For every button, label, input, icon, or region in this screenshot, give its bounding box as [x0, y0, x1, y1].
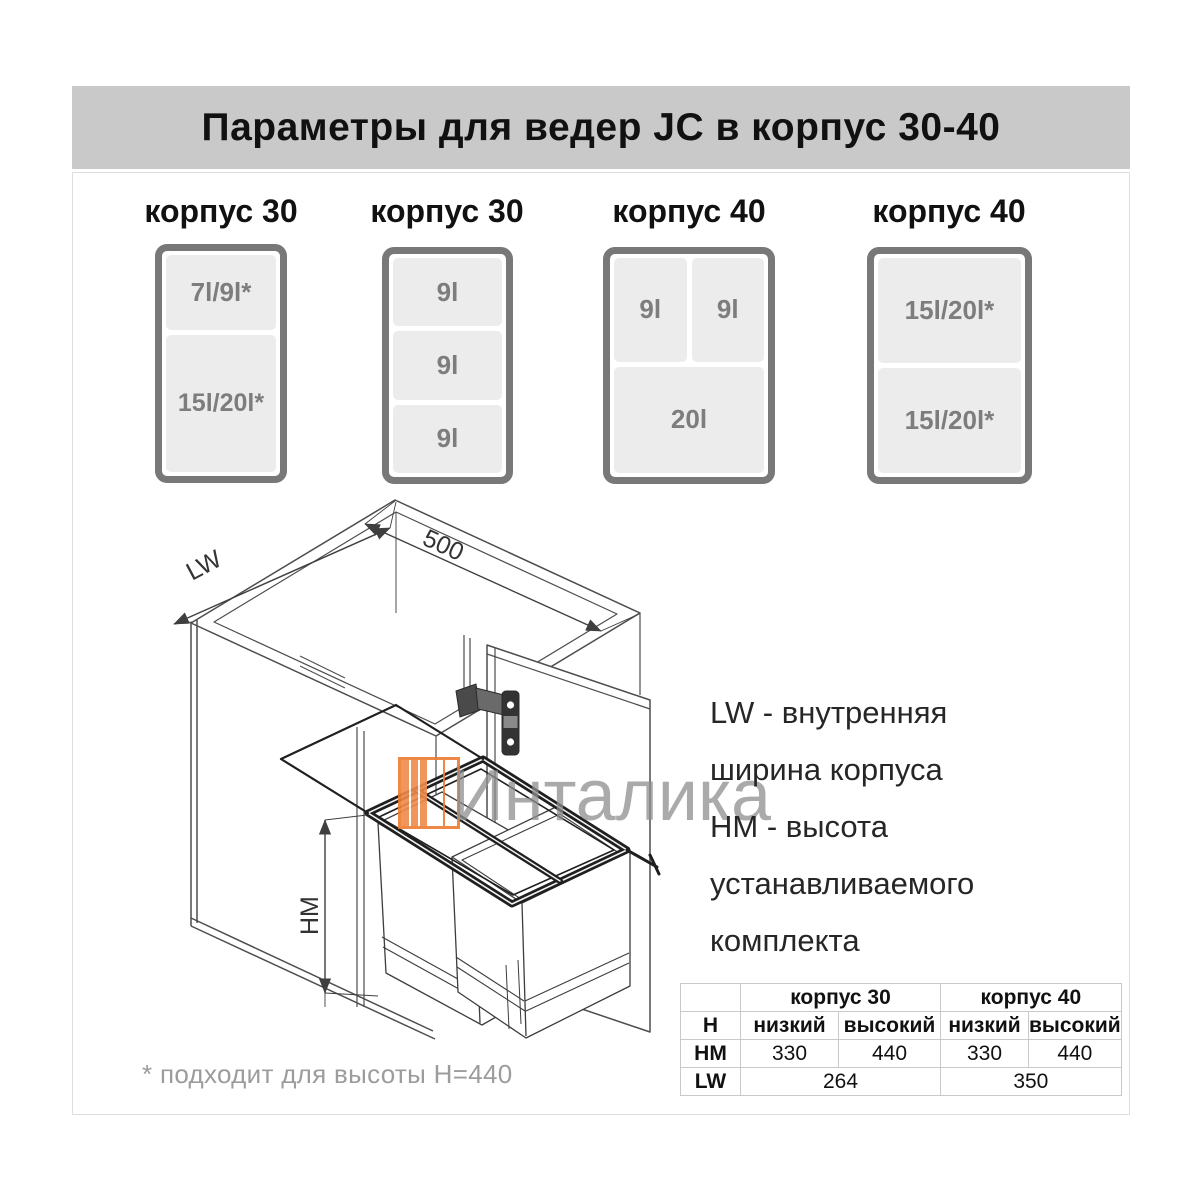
table-cell: низкий	[741, 1012, 839, 1040]
spec-table: корпус 30 корпус 40 H низкий высокий низ…	[680, 983, 1122, 1096]
watermark-logo-fill	[401, 760, 427, 826]
legend-line: HM - высота	[710, 808, 974, 865]
bin-cell: 15l/20l*	[166, 335, 276, 472]
watermark-logo-stripe	[443, 760, 445, 826]
dimension-legend: LW - внутренняя ширина корпуса HM - высо…	[710, 694, 974, 979]
diagram-3-title: корпус 40	[579, 193, 799, 231]
bin-cell: 9l	[393, 405, 502, 473]
table-cell: 330	[741, 1040, 839, 1068]
spec-sheet-page: Параметры для ведер JC в корпус 30-40 ко…	[0, 0, 1200, 1200]
table-row: LW 264 350	[681, 1068, 1122, 1096]
bin-cell: 9l	[614, 258, 687, 362]
col-group-cabinet-30: корпус 30	[741, 984, 941, 1012]
footnote: * подходит для высоты H=440	[142, 1059, 513, 1090]
bin-cell: 7l/9l*	[166, 255, 276, 330]
legend-line: комплекта	[710, 922, 974, 979]
diagram-4-title: корпус 40	[839, 193, 1059, 231]
table-cell: 440	[1029, 1040, 1122, 1068]
cabinet-40-diagram-b: 15l/20l* 15l/20l*	[867, 247, 1032, 484]
bin-cell: 9l	[692, 258, 765, 362]
table-cell: высокий	[839, 1012, 941, 1040]
cabinet-30-diagram-b: 9l 9l 9l	[382, 247, 513, 484]
watermark-logo-stripe	[418, 760, 420, 826]
table-cell: низкий	[941, 1012, 1029, 1040]
watermark-logo-stripe	[409, 760, 411, 826]
diagram-2-title: корпус 30	[337, 193, 557, 231]
diagram-1-title: корпус 30	[111, 193, 331, 231]
table-row: HM 330 440 330 440	[681, 1040, 1122, 1068]
page-title: Параметры для ведер JC в корпус 30-40	[202, 106, 1001, 150]
table-corner-cell	[681, 984, 741, 1012]
page-title-bar: Параметры для ведер JC в корпус 30-40	[72, 86, 1130, 169]
bin-cell: 15l/20l*	[878, 258, 1021, 363]
row-label-hm: HM	[681, 1040, 741, 1068]
legend-line: устанавливаемого	[710, 865, 974, 922]
bin-cell: 20l	[614, 367, 764, 473]
row-label-h: H	[681, 1012, 741, 1040]
dim-width-label: LW	[182, 545, 227, 587]
bin-cell: 9l	[393, 258, 502, 326]
legend-line: ширина корпуса	[710, 751, 974, 808]
watermark-logo-icon	[398, 757, 460, 829]
dim-height-label: HM	[296, 896, 324, 935]
cabinet-30-diagram-a: 7l/9l* 15l/20l*	[155, 244, 287, 483]
table-row: корпус 30 корпус 40	[681, 984, 1122, 1012]
table-cell: 350	[941, 1068, 1122, 1096]
table-cell: 330	[941, 1040, 1029, 1068]
table-cell: 440	[839, 1040, 941, 1068]
col-group-cabinet-40: корпус 40	[941, 984, 1122, 1012]
cabinet-40-diagram-a: 9l 9l 20l	[603, 247, 775, 484]
bin-cell: 9l	[393, 331, 502, 399]
bin-cell: 15l/20l*	[878, 368, 1021, 473]
table-cell: высокий	[1029, 1012, 1122, 1040]
row-label-lw: LW	[681, 1068, 741, 1096]
table-cell: 264	[741, 1068, 941, 1096]
legend-line: LW - внутренняя	[710, 694, 974, 751]
table-row: H низкий высокий низкий высокий	[681, 1012, 1122, 1040]
